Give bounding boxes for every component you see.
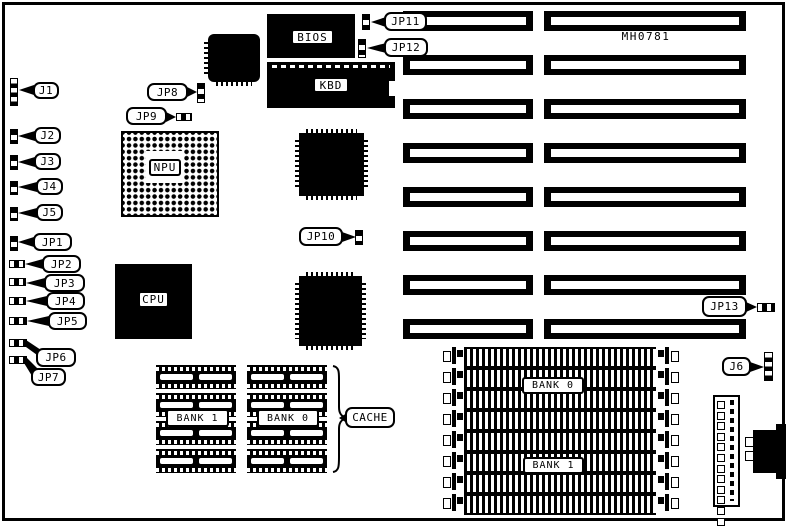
qfp-upper-pins-left — [295, 140, 299, 189]
qfp-lower-pins-bottom — [306, 346, 355, 350]
power-pin — [717, 496, 725, 504]
simm-bank0-label: BANK 0 — [522, 377, 584, 394]
simm-clip-right — [671, 498, 679, 509]
plcc-chip-pins-left — [204, 42, 208, 74]
isa-slot-short-segment — [403, 143, 533, 163]
callout-jp13: JP13 — [702, 296, 747, 317]
power-pin — [717, 443, 725, 451]
callout-jp8: JP8 — [147, 83, 188, 101]
din-pin-block-lower — [745, 451, 754, 461]
kbd-chip-notch — [389, 81, 395, 96]
plcc-chip — [208, 34, 260, 82]
jp10-jumper — [355, 230, 363, 245]
j6-connector — [764, 352, 773, 381]
qfp-upper-pins-top — [306, 129, 357, 133]
simm-pin-row — [464, 347, 656, 368]
power-pin — [717, 401, 725, 409]
power-connector-key-strip — [730, 400, 734, 501]
simm-clip-left — [443, 456, 451, 467]
callout-j5: J5 — [36, 204, 63, 221]
qfp-upper-pins-bottom — [306, 196, 357, 200]
callout-jp4: JP4 — [46, 292, 85, 310]
cache-dip-chip — [156, 365, 236, 389]
isa-slot-short-segment — [403, 99, 533, 119]
qfp-chip-upper — [299, 133, 364, 196]
power-pin — [717, 518, 725, 526]
simm-clip-right — [671, 372, 679, 383]
jp8-jumper — [197, 83, 205, 103]
simm-socket — [443, 494, 673, 511]
qfp-upper-pins-right — [364, 140, 368, 189]
callout-jp10: JP10 — [299, 227, 343, 246]
jp4-jumper — [9, 297, 26, 305]
j4-connector — [10, 181, 18, 195]
cache-callout: CACHE — [345, 407, 395, 428]
cache-bank1-label: BANK 1 — [166, 409, 229, 427]
callout-j6: J6 — [722, 357, 751, 376]
simm-pin-row — [464, 410, 656, 431]
simm-bank1-label: BANK 1 — [523, 457, 584, 474]
simm-clip-right — [671, 456, 679, 467]
jp7-jumper — [9, 356, 27, 364]
isa-slot-long-segment — [544, 231, 746, 251]
callout-j2: J2 — [34, 127, 61, 144]
jp2-jumper — [9, 260, 25, 268]
motherboard-diagram: BIOS KBD NPU CPU MH0781 BANK 0 BANK 1 BA… — [0, 0, 791, 527]
jp3-jumper — [9, 278, 26, 286]
jp12-jumper — [358, 39, 366, 58]
callout-jp6: JP6 — [36, 348, 76, 367]
qfp-chip-lower — [299, 276, 362, 346]
simm-clip-left — [443, 351, 451, 362]
keyboard-din-connector — [776, 424, 786, 479]
callout-jp5: JP5 — [48, 312, 87, 330]
simm-clip-left — [443, 372, 451, 383]
callout-jp9: JP9 — [126, 107, 167, 125]
jp13-jumper — [757, 303, 775, 312]
callout-j3: J3 — [34, 153, 61, 170]
power-pin — [717, 475, 725, 483]
power-pin — [717, 454, 725, 462]
callout-j4: J4 — [36, 178, 63, 195]
simm-socket — [443, 431, 673, 448]
j5-connector — [10, 207, 18, 221]
simm-clip-left — [443, 393, 451, 404]
jp11-jumper — [362, 14, 370, 30]
din-pin-block-upper — [745, 437, 754, 447]
qfp-lower-pins-right — [362, 283, 366, 339]
power-pin — [717, 486, 725, 494]
callout-jp11: JP11 — [384, 12, 427, 31]
simm-clip-right — [671, 393, 679, 404]
isa-slot-long-segment — [544, 99, 746, 119]
npu-label: NPU — [149, 159, 181, 176]
jp1-jumper — [10, 236, 18, 251]
cpu-label: CPU — [138, 291, 169, 308]
board-part-number: MH0781 — [616, 29, 676, 43]
simm-clip-left — [443, 498, 451, 509]
simm-clip-left — [443, 435, 451, 446]
bios-chip-label: BIOS — [291, 29, 334, 45]
power-connector — [713, 395, 740, 507]
callout-j1: J1 — [33, 82, 59, 99]
simm-socket — [443, 410, 673, 427]
keyboard-din-connector-body — [753, 430, 777, 473]
simm-clip-right — [671, 477, 679, 488]
callout-jp12: JP12 — [384, 38, 428, 57]
callout-jp1: JP1 — [33, 233, 72, 251]
j2-connector — [10, 129, 18, 144]
qfp-lower-pins-top — [306, 272, 355, 276]
plcc-chip-pins-bottom — [216, 82, 252, 86]
isa-slot-long-segment — [544, 319, 746, 339]
isa-slot-long-segment — [544, 187, 746, 207]
isa-slot-short-segment — [403, 187, 533, 207]
callout-jp3: JP3 — [44, 274, 85, 292]
power-pin — [717, 422, 725, 430]
simm-clip-left — [443, 414, 451, 425]
power-pin — [717, 465, 725, 473]
kbd-chip-label: KBD — [313, 77, 349, 93]
isa-slot-long-segment — [544, 275, 746, 295]
kbd-chip-pin1-line — [272, 65, 390, 68]
simm-socket — [443, 347, 673, 364]
isa-slot-long-segment — [544, 55, 746, 75]
isa-slot-short-segment — [403, 231, 533, 251]
simm-clip-right — [671, 414, 679, 425]
jp6-jumper — [9, 339, 27, 347]
power-pin — [717, 412, 725, 420]
callout-jp2: JP2 — [42, 255, 81, 273]
simm-pin-row — [464, 494, 656, 515]
j3-connector — [10, 155, 18, 170]
isa-slot-short-segment — [403, 275, 533, 295]
jp5-jumper — [9, 317, 27, 325]
cache-bank0-label: BANK 0 — [257, 409, 319, 427]
cache-dip-chip — [156, 449, 236, 473]
power-pin — [717, 507, 725, 515]
simm-clip-left — [443, 477, 451, 488]
qfp-lower-pins-left — [295, 283, 299, 339]
isa-slot-long-segment — [544, 11, 746, 31]
callout-jp7: JP7 — [31, 368, 66, 386]
simm-pin-row — [464, 431, 656, 452]
isa-slot-long-segment — [544, 143, 746, 163]
simm-clip-right — [671, 351, 679, 362]
cache-dip-chip — [247, 365, 327, 389]
j1-connector — [10, 78, 18, 106]
power-pin — [717, 433, 725, 441]
simm-pin-row — [464, 473, 656, 494]
isa-slot-short-segment — [403, 319, 533, 339]
isa-slot-short-segment — [403, 55, 533, 75]
cache-dip-chip — [247, 449, 327, 473]
simm-clip-right — [671, 435, 679, 446]
jp9-jumper — [176, 113, 192, 121]
simm-socket — [443, 473, 673, 490]
